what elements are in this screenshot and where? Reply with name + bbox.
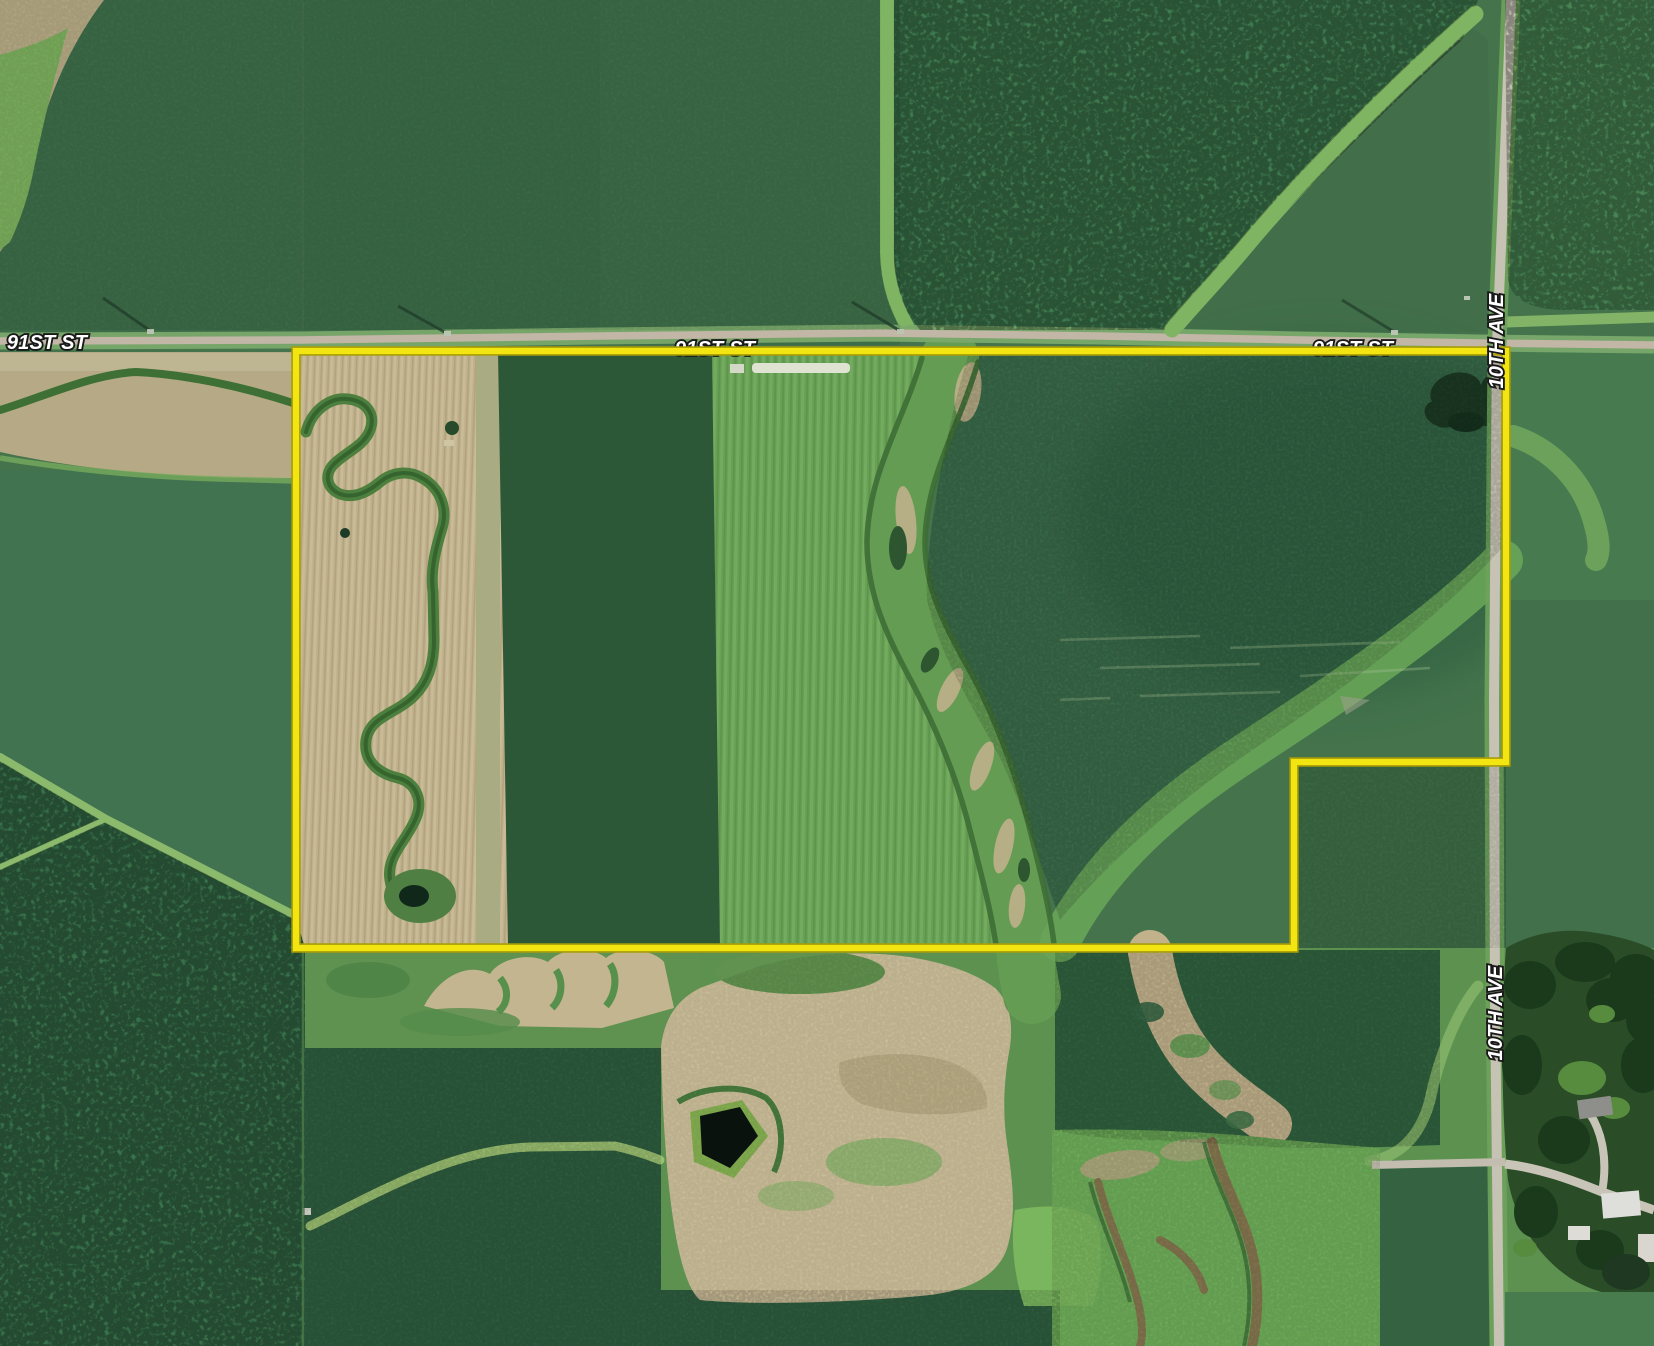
svg-text:10TH AVE: 10TH AVE [1486,293,1508,388]
svg-text:10TH AVE: 10TH AVE [1485,965,1507,1060]
svg-text:91ST ST: 91ST ST [7,332,89,354]
